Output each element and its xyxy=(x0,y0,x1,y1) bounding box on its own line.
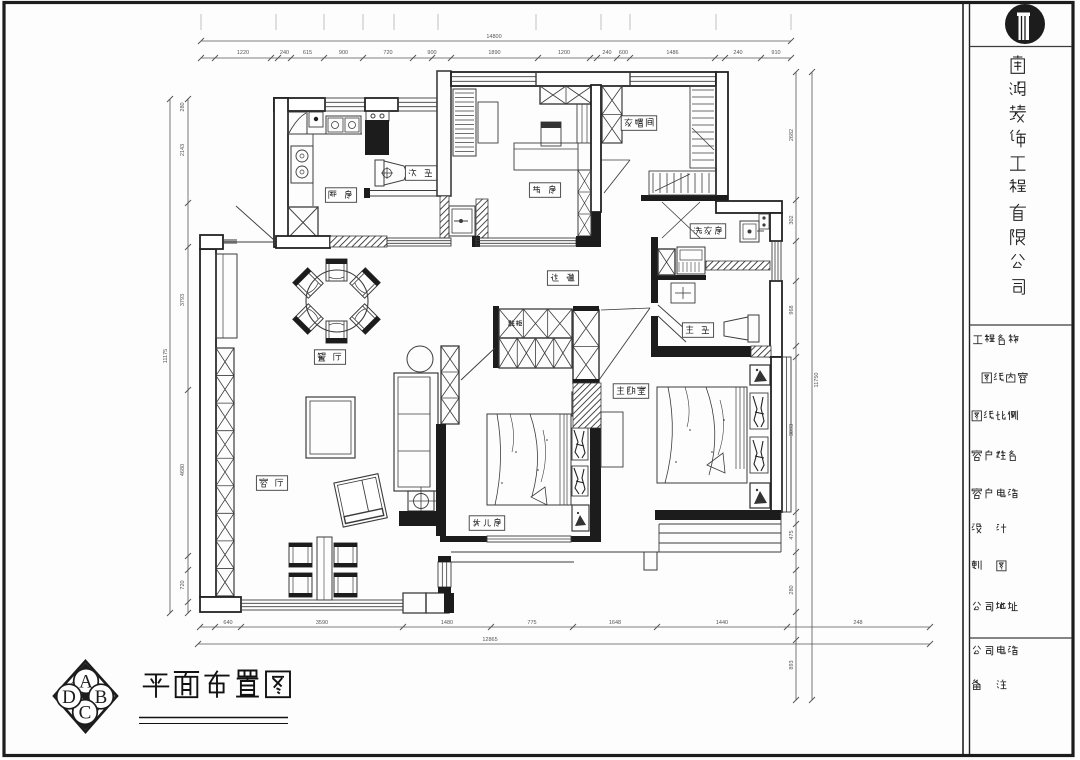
svg-text:3590: 3590 xyxy=(316,620,328,626)
svg-text:11175: 11175 xyxy=(163,349,169,363)
svg-text:1648: 1648 xyxy=(609,620,621,626)
svg-text:600: 600 xyxy=(619,50,628,56)
svg-text:900: 900 xyxy=(339,50,348,56)
svg-text:14800: 14800 xyxy=(486,34,501,40)
svg-text:2143: 2143 xyxy=(180,144,186,156)
svg-text:C: C xyxy=(79,703,92,724)
svg-text:D: D xyxy=(62,687,76,708)
svg-text:3093: 3093 xyxy=(789,424,795,436)
svg-text:475: 475 xyxy=(789,530,795,539)
svg-text:893: 893 xyxy=(789,660,795,669)
svg-text:1440: 1440 xyxy=(716,620,728,626)
svg-text:4680: 4680 xyxy=(180,464,186,476)
svg-text:302: 302 xyxy=(789,215,795,224)
svg-text:B: B xyxy=(95,687,108,708)
svg-text:720: 720 xyxy=(383,50,392,56)
svg-text:968: 968 xyxy=(789,305,795,314)
svg-text:1220: 1220 xyxy=(237,50,249,56)
svg-text:240: 240 xyxy=(733,50,742,56)
svg-text:280: 280 xyxy=(180,102,186,111)
svg-text:1890: 1890 xyxy=(488,50,500,56)
svg-text:1200: 1200 xyxy=(558,50,570,56)
svg-text:2682: 2682 xyxy=(789,129,795,141)
svg-text:240: 240 xyxy=(280,50,289,56)
svg-text:615: 615 xyxy=(303,50,312,56)
svg-text:12865: 12865 xyxy=(482,637,497,643)
svg-text:280: 280 xyxy=(789,585,795,594)
svg-text:910: 910 xyxy=(771,50,780,56)
svg-text:1480: 1480 xyxy=(441,620,453,626)
svg-text:720: 720 xyxy=(180,580,186,589)
svg-text:640: 640 xyxy=(223,620,232,626)
svg-text:3793: 3793 xyxy=(180,294,186,306)
svg-text:240: 240 xyxy=(602,50,611,56)
svg-text:900: 900 xyxy=(427,50,436,56)
svg-text:1486: 1486 xyxy=(666,50,678,56)
svg-text:11750: 11750 xyxy=(814,373,820,388)
svg-text:775: 775 xyxy=(527,620,536,626)
svg-text:248: 248 xyxy=(853,620,862,626)
